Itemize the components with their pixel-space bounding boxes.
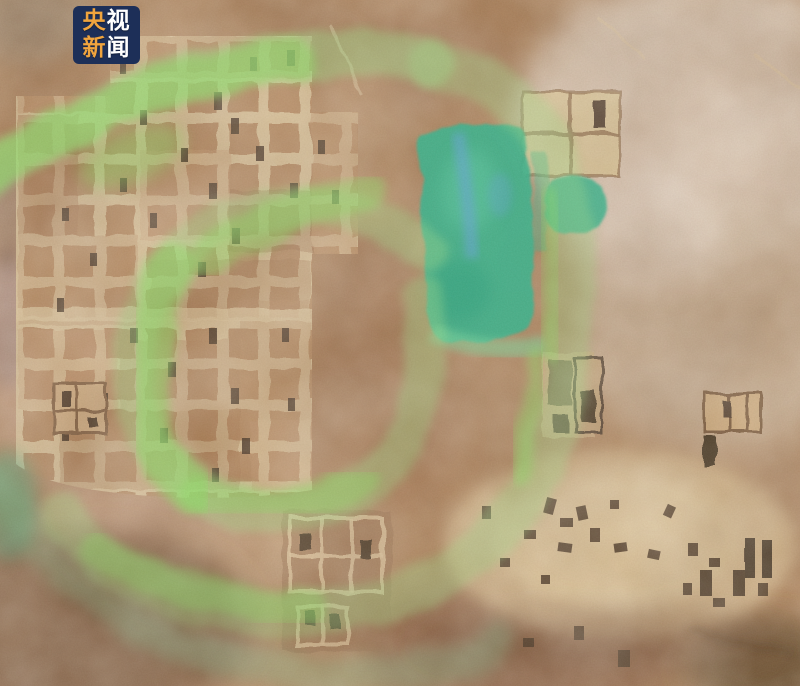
- aerial-photo-archaeological-site: 央视 新闻: [0, 0, 800, 686]
- watermark-char-xin: 新: [83, 35, 107, 61]
- watermark-char-shi: 视: [107, 8, 131, 34]
- grain-light: [0, 0, 800, 686]
- watermark-row-1: 央视: [73, 8, 140, 35]
- watermark-char-wen: 闻: [107, 35, 131, 61]
- cctv-news-watermark: 央视 新闻: [73, 6, 140, 64]
- watermark-row-2: 新闻: [73, 35, 140, 62]
- watermark-char-yang: 央: [83, 8, 107, 34]
- site-photo-canvas: [0, 0, 800, 686]
